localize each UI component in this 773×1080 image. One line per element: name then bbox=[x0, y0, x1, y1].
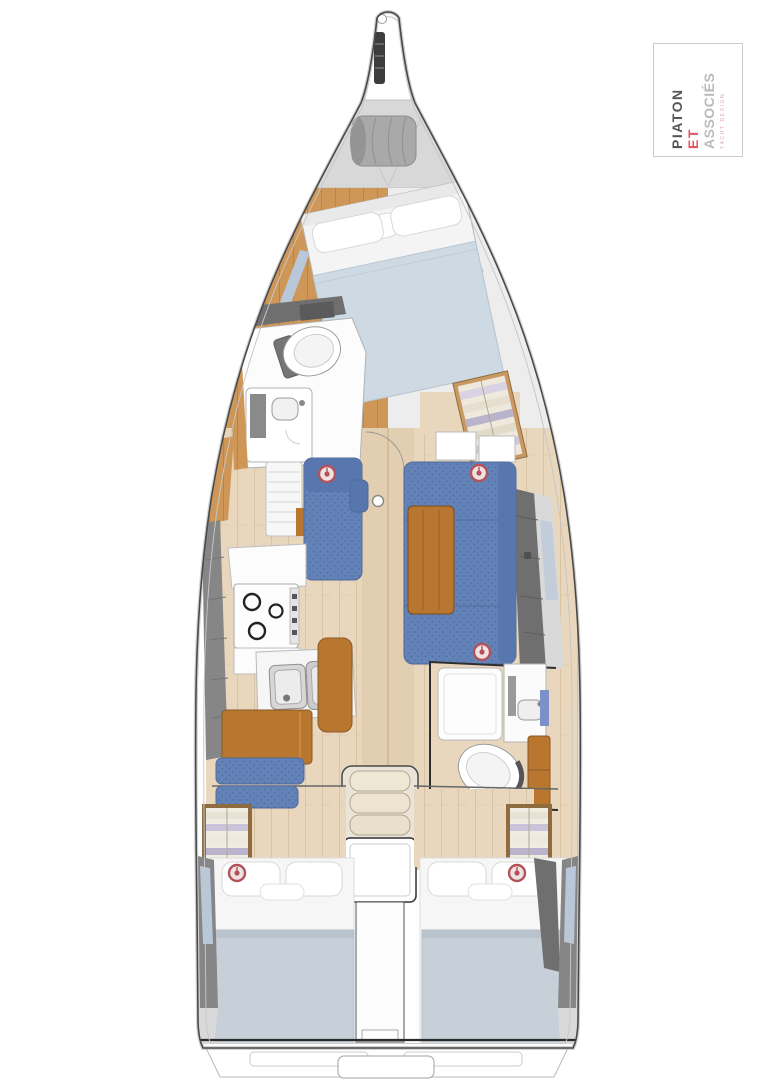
locker bbox=[436, 432, 476, 460]
yacht-floorplan-canvas bbox=[0, 0, 773, 1080]
designer-logo: PIATON ET ASSOCIÉS YACHT DESIGN bbox=[653, 43, 743, 157]
wardrobe-icon bbox=[506, 804, 552, 866]
logo-tagline: YACHT DESIGN bbox=[720, 93, 726, 149]
logo-line1: PIATON bbox=[670, 88, 686, 149]
mast-post-icon bbox=[373, 496, 384, 507]
stove-icon bbox=[234, 584, 299, 648]
hatch-marker-icon bbox=[474, 644, 490, 660]
pillow bbox=[468, 884, 512, 900]
galley-shelf-unit bbox=[266, 462, 305, 536]
swim-platform bbox=[206, 1048, 568, 1078]
sink-icon bbox=[272, 398, 298, 420]
step bbox=[350, 793, 410, 813]
mirror-icon bbox=[508, 676, 516, 716]
step bbox=[350, 815, 410, 835]
nav-seat bbox=[216, 758, 304, 784]
center-trunk bbox=[356, 902, 404, 1042]
faucet-icon bbox=[299, 400, 305, 406]
saloon-table bbox=[408, 506, 454, 614]
anchor-locker bbox=[314, 100, 462, 188]
counter-wood bbox=[318, 638, 352, 732]
stowed-sail-icon bbox=[350, 116, 416, 166]
hatch-marker-icon bbox=[471, 465, 487, 481]
step bbox=[350, 771, 410, 791]
port-settee bbox=[304, 458, 368, 580]
hatch-marker-icon bbox=[229, 865, 245, 881]
page: PIATON ET ASSOCIÉS YACHT DESIGN bbox=[0, 0, 773, 1080]
pillow bbox=[260, 884, 304, 900]
locker bbox=[479, 436, 515, 462]
aft-cabin-port bbox=[198, 786, 354, 1044]
logo-line2: ET bbox=[686, 128, 702, 149]
mattress bbox=[210, 930, 354, 1042]
shower-icon bbox=[438, 668, 502, 740]
engine-box bbox=[344, 838, 416, 902]
logo-line3: ASSOCIÉS bbox=[702, 73, 718, 149]
hatch-marker-icon bbox=[509, 865, 525, 881]
nav-table bbox=[222, 710, 312, 764]
hatch-marker-icon bbox=[319, 466, 335, 482]
wardrobe-icon bbox=[202, 804, 252, 866]
mirror-icon bbox=[250, 394, 266, 438]
towel-icon bbox=[540, 690, 549, 726]
